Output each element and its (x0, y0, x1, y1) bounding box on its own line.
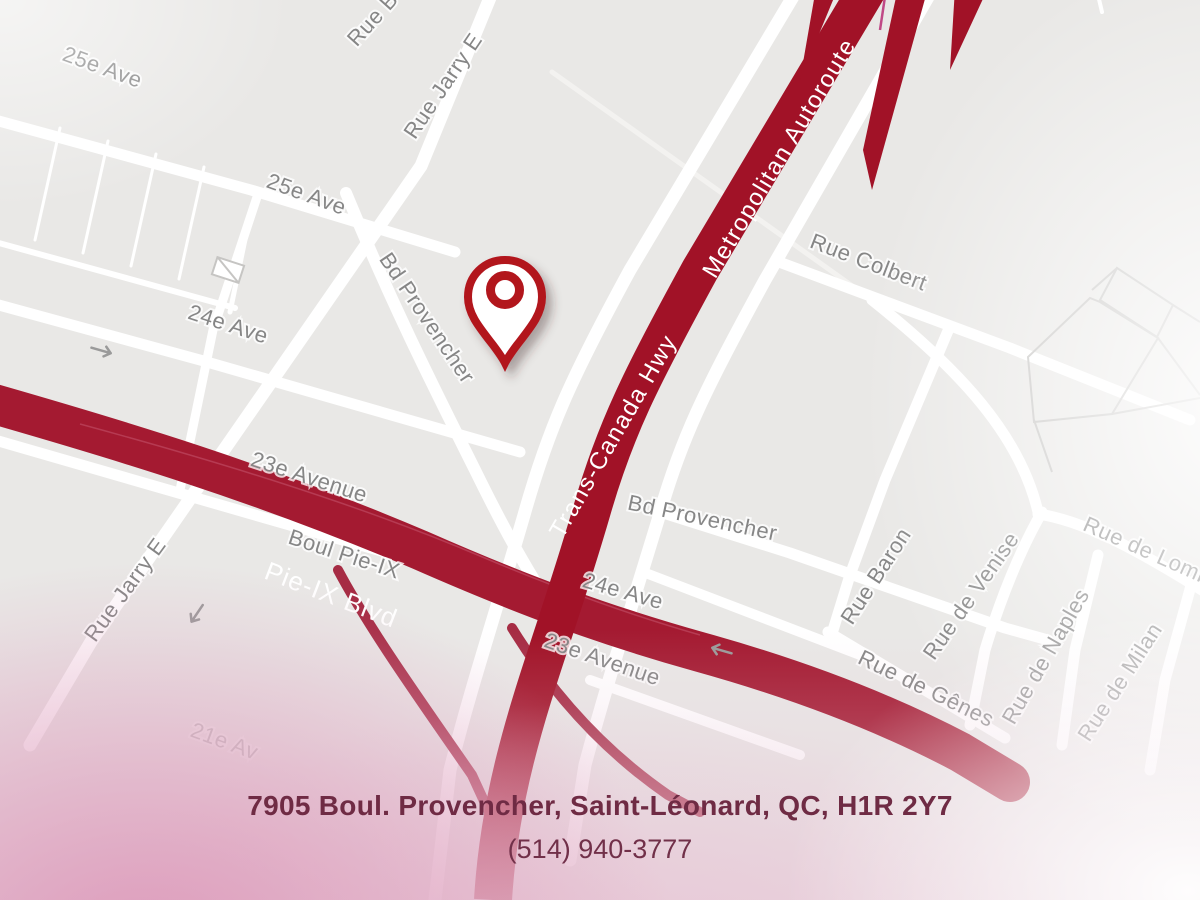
location-footer: 7905 Boul. Provencher, Saint-Léonard, QC… (0, 790, 1200, 865)
phone-number: (514) 940-3777 (0, 834, 1200, 865)
map-view[interactable]: 25e Ave25e AveRue BRue Jarry EBd Provenc… (0, 0, 1200, 900)
map-canvas: 25e Ave25e AveRue BRue Jarry EBd Provenc… (0, 0, 1200, 900)
address-text: 7905 Boul. Provencher, Saint-Léonard, QC… (0, 790, 1200, 822)
